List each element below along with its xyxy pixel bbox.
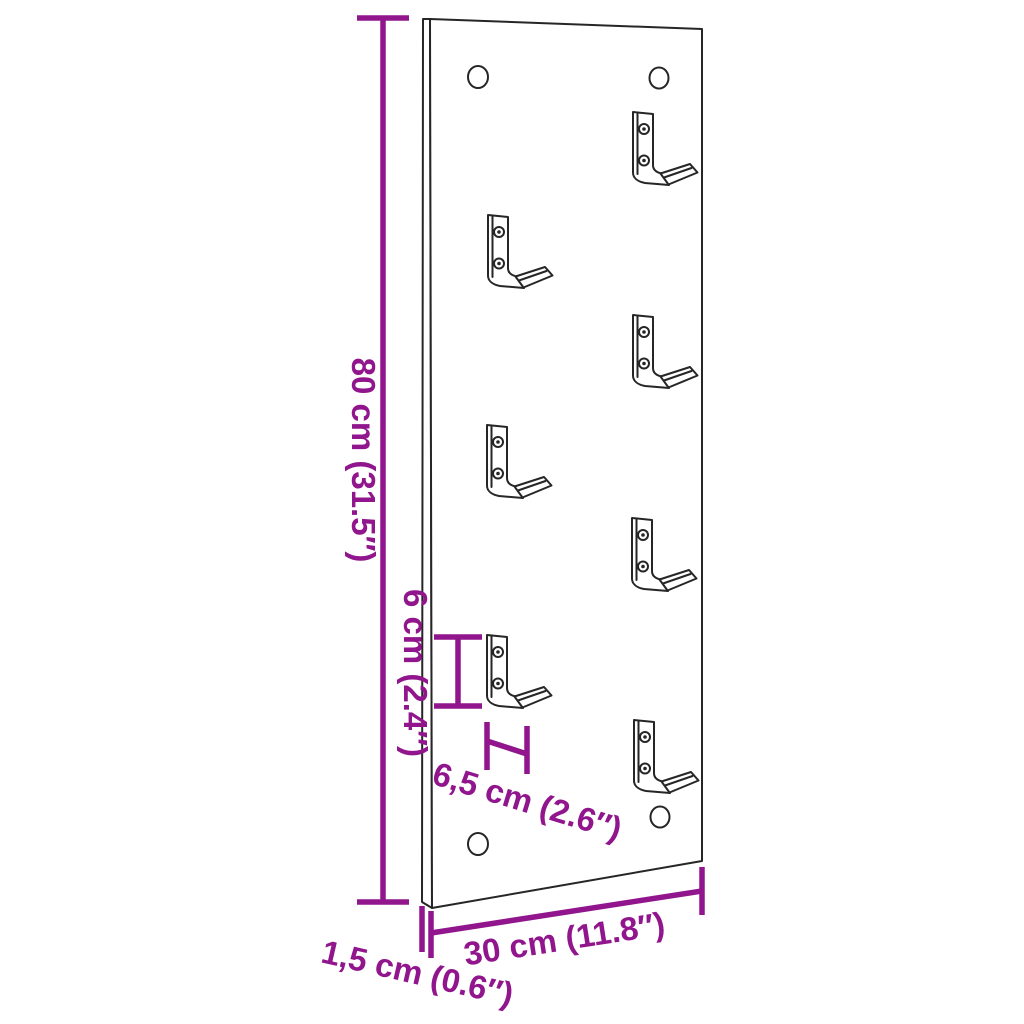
mounting-hole-top-left (468, 66, 488, 88)
mounting-hole-top-right (650, 68, 669, 89)
dimension-diagram: 80 cm (31.5″) 6 cm (2.4″) 6,5 cm (2.6″) … (0, 0, 1024, 1024)
height-dimension-label: 80 cm (31.5″) (345, 358, 382, 563)
mounting-hole-bottom-left (468, 833, 488, 855)
hook-height-dimension-label: 6 cm (2.4″) (397, 589, 434, 757)
mounting-hole-bottom-right (651, 807, 670, 828)
